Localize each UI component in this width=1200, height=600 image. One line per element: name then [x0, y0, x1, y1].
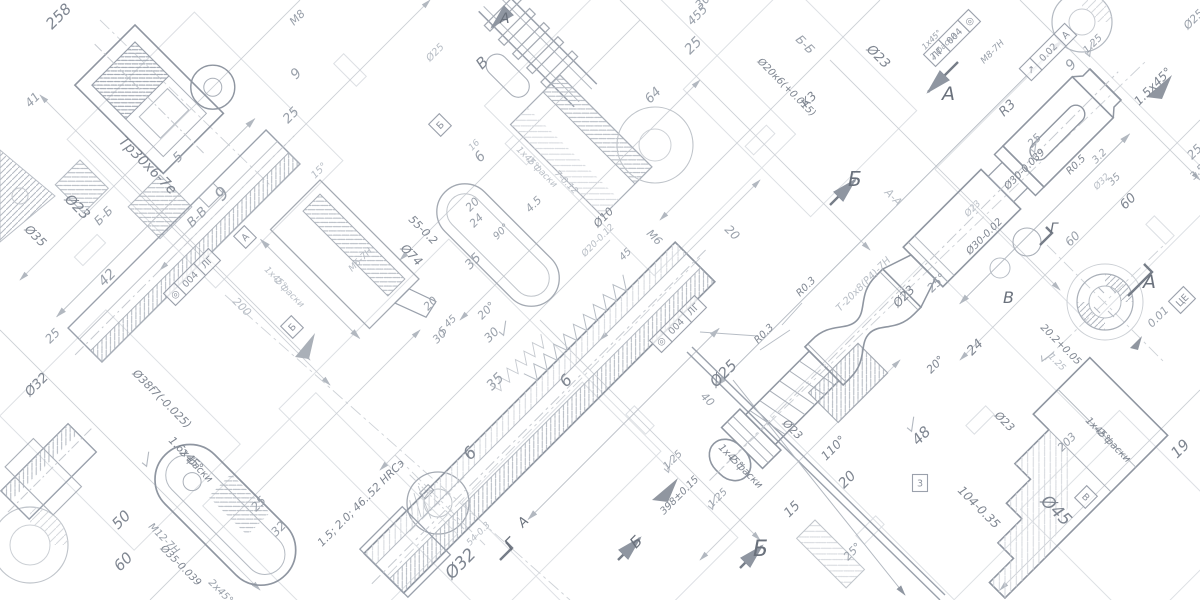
annotation-label: 20: [836, 468, 860, 492]
annotation-label: Ø38f7(-0.025): [129, 366, 194, 431]
annotation-label: 41: [22, 89, 43, 110]
annotation-label: А: [1141, 271, 1156, 293]
annotation-label: 20: [463, 195, 482, 214]
left-bottom-ring: [0, 507, 68, 583]
annotation-label: 25: [1025, 131, 1044, 150]
annotation-label: 19: [1167, 436, 1193, 462]
annotation-label: 200: [230, 295, 254, 319]
annotation-label: Ø74: [397, 241, 425, 269]
annotation-label: 20: [421, 294, 440, 313]
annotation-label: 6: [472, 148, 490, 166]
annotation-label: 60: [1062, 228, 1083, 249]
annotation-label: 35: [1106, 171, 1123, 188]
gost-frame-cell-label: 3: [917, 479, 923, 490]
annotation-label: Ø23: [779, 416, 805, 442]
shaft-detail-circle-1: [1013, 228, 1041, 256]
annotation-label: 25: [682, 34, 706, 58]
annotation-label: 3.2: [1090, 147, 1109, 166]
annotation-label: Б: [753, 537, 768, 562]
gost-frame: 3: [913, 475, 928, 492]
annotation-label: R3: [996, 97, 1019, 120]
annotation-label: Ø25: [423, 41, 447, 65]
gost-frame: Б: [281, 316, 304, 339]
annotation-label: R0.3: [752, 322, 776, 346]
annotation-label: М6: [644, 227, 665, 248]
annotation-label: 42: [96, 266, 120, 290]
annotation-label: 60: [1117, 191, 1139, 213]
annotation-label: 25: [280, 105, 302, 127]
gost-frame: ↗0.02А: [1019, 23, 1076, 80]
annotation-label: 25°: [924, 270, 949, 295]
annotation-label: А: [499, 11, 510, 27]
annotation-label: Г: [1050, 221, 1059, 237]
annotation-label: 32: [268, 518, 289, 539]
staircase-part: [927, 358, 1167, 598]
annotation-label: Ø20к6(+0.015): [754, 55, 818, 119]
annotation-label: R0.5: [1064, 153, 1088, 177]
annotation-label: 15°: [309, 161, 329, 181]
stadium-link: [141, 430, 311, 600]
annotation-label: В: [472, 53, 492, 73]
annotation-label: 4.5: [523, 194, 545, 216]
annotation-label: Ø23: [991, 408, 1017, 434]
bottom-left-flange: [0, 405, 115, 537]
annotation-label: 2 фаски: [272, 276, 306, 310]
gost-frame: А: [234, 226, 257, 249]
annotation-label: 25: [1184, 141, 1200, 162]
annotation-label: 35: [484, 370, 508, 394]
gost-frame: В: [1075, 486, 1098, 509]
annotation-label: 20°: [475, 299, 498, 322]
annotation-label: А-А: [881, 185, 904, 208]
left-bar: [47, 107, 311, 371]
top-collar-bore-inner: [639, 129, 671, 161]
annotation-label: 25: [42, 325, 63, 346]
annotation-label: 2х45°: [206, 577, 235, 600]
leader-lines-r03: [700, 303, 802, 350]
annotation-label: Ø25: [705, 356, 740, 391]
annotation-label: В: [1003, 288, 1014, 307]
annotation-label: Б-Б: [793, 32, 818, 57]
gost-frame: Б: [429, 114, 452, 137]
annotation-label: Б-Б: [91, 204, 116, 229]
annotation-label: 1.25: [661, 449, 685, 473]
blueprint-page: ◎004ЛГ◎004ЛГЛГ004◎↗0.02АВЦЕ3АББ 25841Тр3…: [0, 0, 1200, 600]
annotation-label: Ø25: [1180, 7, 1200, 33]
annotation-label: 50: [108, 507, 134, 533]
annotation-label: Ø30-0.039: [1001, 146, 1048, 193]
annotation-label: Ø35: [21, 222, 49, 250]
annotation-label: 3.5: [1188, 163, 1200, 182]
annotation-label: Ø23: [862, 42, 892, 72]
annotation-label: 60: [110, 549, 136, 575]
annotation-label: 55-0.2: [406, 213, 440, 247]
top-collar: [511, 75, 652, 216]
annotation-label: 9: [288, 65, 306, 83]
annotation-label: 258: [42, 0, 75, 33]
annotation-label: 20°: [924, 353, 947, 376]
annotation-label: Ø23: [962, 198, 984, 220]
gost-frame: ЦЕ: [1169, 287, 1196, 314]
annotation-label: 9: [1063, 56, 1081, 74]
annotation-label: 64: [642, 85, 664, 107]
annotation-label: 15: [781, 499, 803, 521]
annotation-label: 30: [481, 324, 502, 345]
annotation-label: 40: [698, 390, 717, 409]
annotation-label: Ø23: [890, 283, 918, 311]
shaft-detail-circle-2: [990, 258, 1010, 278]
slot-plate: [425, 172, 571, 318]
annotation-label: Ø30-0.02: [963, 216, 1005, 258]
annotation-label: 1.5х45°: [1131, 65, 1174, 108]
annotation-label: А: [940, 83, 955, 105]
annotation-label: Б: [848, 167, 862, 191]
annotation-label: 20: [722, 222, 743, 243]
annotation-label: 2 фаски: [727, 453, 765, 491]
annotation-label: 2 фаски: [177, 447, 215, 485]
top-left-block: [64, 0, 257, 184]
annotation-label: 45: [617, 246, 634, 263]
annotation-label: А: [515, 514, 533, 532]
annotation-label: 24: [964, 337, 986, 359]
annotation-label: 90°: [491, 222, 511, 242]
annotation-label: 104-0.35: [955, 483, 1003, 531]
annotation-label: Ø32: [22, 370, 52, 400]
annotation-label: 0.01: [1145, 304, 1172, 331]
annotation-label: 24: [467, 211, 486, 230]
annotation-label: Г: [500, 533, 521, 554]
annotation-label: 2 фаски: [1095, 427, 1133, 465]
annotation-label: М8-7Н: [979, 38, 1007, 66]
engineering-drawing-canvas: ◎004ЛГ◎004ЛГЛГ004◎↗0.02АВЦЕ3АББ 25841Тр3…: [0, 0, 1200, 600]
annotation-label: 45: [442, 313, 459, 330]
